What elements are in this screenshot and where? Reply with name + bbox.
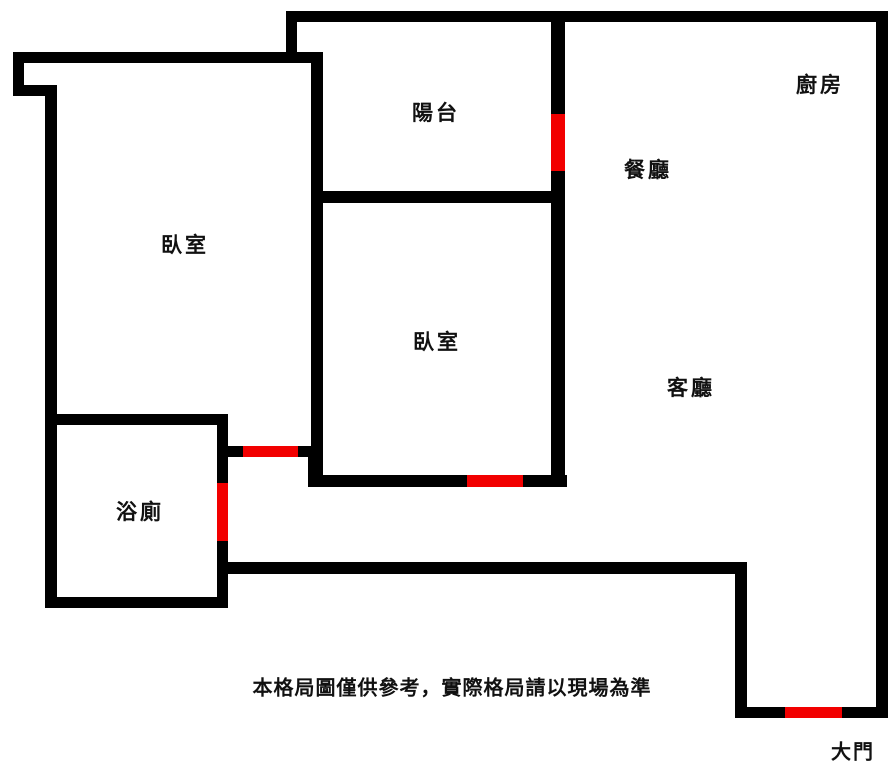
room-label-kitchen: 廚房	[796, 69, 844, 99]
bedroom-left-door-opening	[243, 446, 298, 457]
hallway-bottom-wall	[217, 562, 747, 574]
main-door-opening	[785, 707, 842, 718]
bedroom-middle-door-opening	[467, 475, 523, 487]
bathroom-door-opening	[217, 483, 228, 541]
disclaimer-text: 本格局圖僅供參考，實際格局請以現場為準	[253, 672, 652, 701]
room-label-living-room: 客廳	[667, 372, 715, 402]
balcony-window-opening	[551, 114, 565, 171]
bedroom-divider-wall	[311, 52, 323, 487]
bathroom-top-wall	[45, 414, 228, 425]
entrance-label: 大門	[831, 736, 875, 765]
room-label-dining-room: 餐廳	[624, 154, 672, 184]
bathroom-bottom-wall	[45, 597, 228, 608]
room-label-bedroom-left: 臥室	[161, 229, 209, 259]
balcony-bottom-wall	[311, 191, 565, 203]
top-outer-wall	[286, 11, 888, 22]
entry-side-wall	[735, 562, 747, 718]
room-label-bedroom-middle: 臥室	[413, 326, 461, 356]
floor-plan: 陽台 廚房 餐廳 臥室 臥室 客廳 浴廁 大門 本格局圖僅供參考，實際格局請以現…	[0, 0, 889, 771]
central-vertical-wall	[551, 11, 565, 487]
left-outer-wall-lower	[45, 85, 57, 608]
bedroom-middle-bottom-wall	[311, 475, 567, 487]
room-label-bathroom: 浴廁	[116, 496, 164, 526]
room-label-balcony: 陽台	[412, 97, 460, 127]
right-outer-wall	[876, 11, 888, 718]
bedroom-left-top-wall	[13, 52, 323, 63]
